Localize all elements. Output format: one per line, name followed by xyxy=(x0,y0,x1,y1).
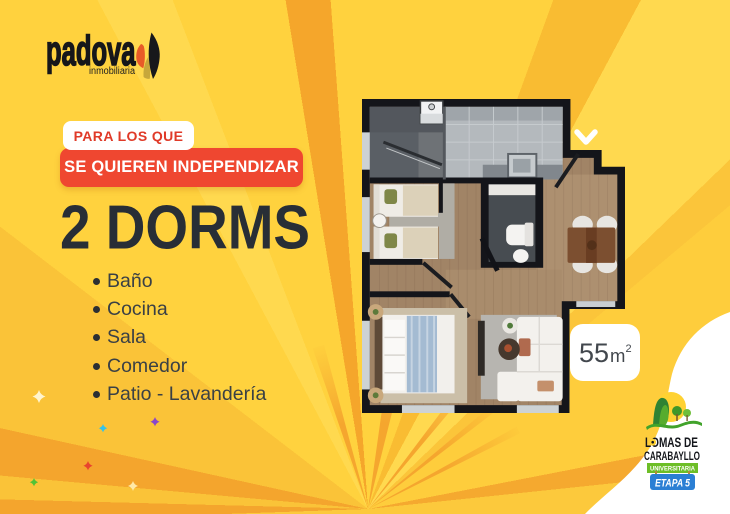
svg-text:2 DORMS: 2 DORMS xyxy=(60,194,310,263)
svg-text:2: 2 xyxy=(626,343,632,355)
svg-text:CARABAYLLO: CARABAYLLO xyxy=(644,449,700,463)
svg-text:inmobiliaria: inmobiliaria xyxy=(89,66,135,77)
svg-text:55: 55 xyxy=(579,338,609,368)
svg-text:ETAPA 5: ETAPA 5 xyxy=(655,478,691,490)
svg-text:m: m xyxy=(610,345,625,366)
